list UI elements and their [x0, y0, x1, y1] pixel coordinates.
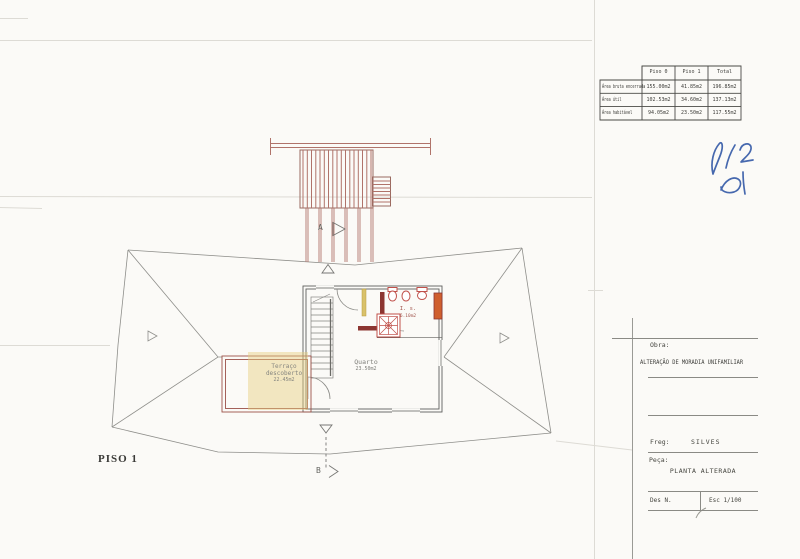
- signature: [688, 126, 783, 206]
- des-label: Des N.: [650, 497, 672, 504]
- sink-icon: [418, 292, 427, 300]
- table-row-label: Área útil: [602, 97, 622, 103]
- terrace-label: Terraço descoberto 22.45m2: [254, 363, 314, 384]
- freg-label: Freg:: [650, 438, 670, 446]
- quarto-name: Quarto: [336, 359, 396, 366]
- bidet-icon: [402, 291, 410, 301]
- peca-label: Peça:: [649, 456, 669, 464]
- staircase: [311, 294, 333, 378]
- scanned-drawing-sheet: Piso 0 Piso 1 Total Área bruta encerrada…: [0, 0, 800, 559]
- peca-value: PLANTA ALTERADA: [648, 467, 758, 475]
- table-cell: 94.05m2: [642, 110, 675, 116]
- table-col-header: Total: [708, 69, 741, 75]
- quarto-area: 23.50m2: [336, 366, 396, 373]
- terrace-name-line2: descoberto: [254, 370, 314, 377]
- table-cell: 117.55m2: [708, 110, 741, 116]
- pergola-posts: [306, 208, 373, 262]
- section-b-arrow-icon: [329, 466, 338, 478]
- bathroom-name: I. s.: [395, 306, 421, 313]
- table-cell: 102.53m2: [642, 97, 675, 103]
- esc-value: Esc 1/100: [709, 497, 742, 504]
- scan-artifacts: [0, 0, 632, 559]
- section-marker-a-label: A: [318, 223, 323, 232]
- table-cell: 137.13m2: [708, 97, 741, 103]
- table-cell: 23.50m2: [675, 110, 708, 116]
- floor-title: PISO 1: [98, 453, 138, 465]
- table-cell: 155.00m2: [642, 84, 675, 90]
- roof-slope-arrow-right: [500, 333, 509, 343]
- roof-slope-arrow-left: [148, 331, 157, 341]
- title-block-border: [632, 318, 633, 559]
- table-cell: 41.85m2: [675, 84, 708, 90]
- north-triangle-icon: [322, 265, 334, 274]
- section-b-triangle-icon: [320, 425, 332, 433]
- door-arcs: [308, 289, 404, 399]
- obra-label: Obra:: [650, 341, 670, 349]
- terrace-name-line1: Terraço: [254, 363, 314, 370]
- toilet-icon: [389, 291, 397, 301]
- bathroom-area: 6.10m2: [395, 313, 421, 320]
- table-col-header: Piso 0: [642, 69, 675, 75]
- bathroom-label: I. s. 6.10m2: [395, 306, 421, 320]
- obra-value: ALTERAÇÃO DE MORADIA UNIFAMILIAR: [640, 359, 743, 366]
- section-markers: [320, 223, 345, 478]
- section-a-arrow-icon: [333, 223, 345, 236]
- table-row-label: Área bruta encerrada: [602, 84, 645, 90]
- freg-value: SILVES: [691, 438, 720, 446]
- terrace-area: 22.45m2: [254, 377, 314, 384]
- table-cell: 196.85m2: [708, 84, 741, 90]
- quarto-label: Quarto 23.50m2: [336, 359, 396, 373]
- house-walls: [303, 286, 444, 414]
- section-marker-b-label: B: [316, 466, 321, 475]
- column-heater: [434, 293, 442, 319]
- table-col-header: Piso 1: [675, 69, 708, 75]
- table-cell: 34.60m2: [675, 97, 708, 103]
- pergola: [270, 138, 431, 262]
- table-row-label: Área habitável: [602, 110, 632, 116]
